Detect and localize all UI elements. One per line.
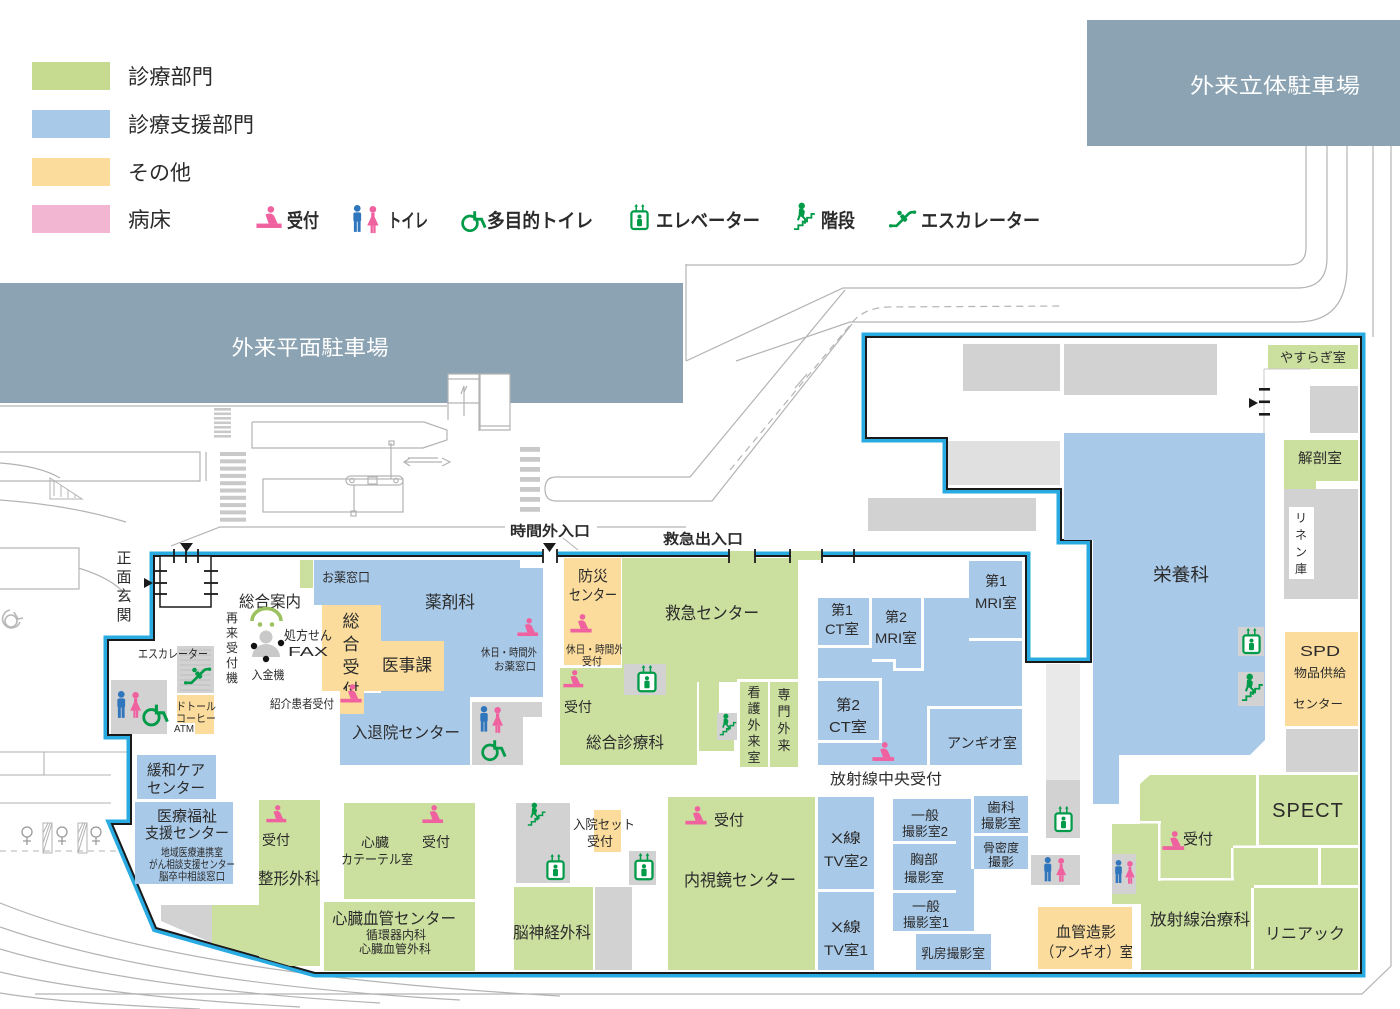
svg-text:医事課: 医事課 [382,656,432,675]
svg-text:紹介患者受付: 紹介患者受付 [270,697,334,711]
svg-text:整形外科: 整形外科 [258,870,320,888]
svg-text:物品供給: 物品供給 [1294,666,1346,680]
svg-text:センター: センター [569,587,617,604]
svg-text:外来立体駐車場: 外来立体駐車場 [1190,75,1360,98]
svg-text:第1: 第1 [831,602,853,618]
svg-text:医療福祉: 医療福祉 [157,808,217,825]
svg-text:薬剤科: 薬剤科 [425,593,475,612]
svg-text:お薬窓口: お薬窓口 [494,659,536,673]
svg-text:入院セット: 入院セット [573,817,635,832]
svg-text:血管造影: 血管造影 [1056,924,1116,941]
svg-text:受付: 受付 [564,699,592,715]
svg-text:第1: 第1 [985,573,1007,589]
svg-text:緩和ケア: 緩和ケア [147,762,205,779]
svg-text:MRI室: MRI室 [975,595,1017,611]
svg-text:受付: 受付 [582,655,602,668]
svg-text:トイレ: トイレ [388,211,428,232]
svg-text:放射線中央受付: 放射線中央受付 [830,771,942,788]
svg-text:病床: 病床 [128,209,171,232]
svg-text:X線: X線 [831,830,861,846]
svg-text:受付: 受付 [1183,831,1213,848]
svg-text:胸部: 胸部 [910,852,938,867]
svg-text:TV室1: TV室1 [824,942,868,958]
svg-text:休日・時間外: 休日・時間外 [481,646,537,659]
svg-text:（アンギオ）室: （アンギオ）室 [1041,944,1133,961]
svg-text:救急センター: 救急センター [665,604,759,623]
svg-text:階段: 階段 [821,209,856,232]
svg-text:骨密度: 骨密度 [983,840,1019,855]
svg-text:歯科: 歯科 [987,800,1015,815]
svg-text:ドトール: ドトール [176,701,216,713]
svg-text:センター: センター [147,780,205,797]
svg-text:地域医療連携室: 地域医療連携室 [161,845,223,859]
svg-text:脳卒中相談窓口: 脳卒中相談窓口 [159,869,225,883]
svg-text:撮影室: 撮影室 [981,816,1021,831]
svg-text:循環器内科: 循環器内科 [366,928,426,942]
svg-text:心臓血管外科: 心臓血管外科 [359,941,431,956]
svg-text:診療支援部門: 診療支援部門 [128,114,254,137]
svg-text:診療部門: 診療部門 [128,66,213,89]
svg-text:防災: 防災 [578,568,608,585]
svg-text:エスカレーター: エスカレーター [921,210,1040,232]
svg-text:支援センター: 支援センター [145,825,229,842]
svg-text:撮影室1: 撮影室1 [903,915,949,930]
svg-text:第2: 第2 [836,696,860,714]
svg-text:やすらぎ室: やすらぎ室 [1280,350,1346,365]
svg-text:X線: X線 [831,919,861,935]
svg-text:撮影室2: 撮影室2 [902,824,948,839]
svg-text:多目的トイレ: 多目的トイレ [487,209,593,232]
svg-text:一般: 一般 [912,899,940,914]
svg-text:TV室2: TV室2 [824,853,868,869]
svg-text:がん相談支援センター: がん相談支援センター [149,857,235,871]
svg-text:受付: 受付 [714,812,744,829]
svg-text:エレベーター: エレベーター [656,210,760,232]
svg-text:脳神経外科: 脳神経外科 [513,924,591,942]
svg-text:リニアック: リニアック [1265,925,1345,943]
svg-text:解剖室: 解剖室 [1298,450,1342,466]
svg-text:受付: 受付 [287,209,319,232]
svg-text:SPD: SPD [1300,643,1340,660]
svg-text:アンギオ室: アンギオ室 [947,735,1017,751]
svg-text:一般: 一般 [911,808,939,823]
svg-text:撮影室: 撮影室 [904,870,944,885]
svg-text:お薬窓口: お薬窓口 [322,570,370,585]
svg-text:外来平面駐車場: 外来平面駐車場 [232,337,389,360]
svg-text:看護外来室: 看護外来室 [747,685,760,765]
svg-text:撮影: 撮影 [988,855,1014,869]
svg-text:受付: 受付 [422,834,450,850]
svg-text:第2: 第2 [885,609,907,625]
svg-text:CT室: CT室 [825,621,859,637]
svg-text:SPECT: SPECT [1272,800,1344,822]
svg-text:放射線治療科: 放射線治療科 [1150,911,1250,929]
svg-text:カテーテル室: カテーテル室 [341,852,413,867]
svg-text:休日・時間外: 休日・時間外 [566,643,624,656]
svg-text:心臓血管センター: 心臓血管センター [332,910,456,928]
svg-text:CT室: CT室 [829,719,867,736]
svg-text:処方せん: 処方せん [284,628,332,643]
svg-text:内視鏡センター: 内視鏡センター [684,871,796,890]
svg-text:エスカレーター: エスカレーター [138,647,208,661]
svg-text:心臓: 心臓 [361,835,389,850]
svg-text:その他: その他 [128,162,191,185]
svg-text:入金機: 入金機 [252,667,285,682]
svg-text:入退院センター: 入退院センター [352,724,460,742]
svg-text:再来受付機: 再来受付機 [226,611,238,685]
svg-text:栄養科: 栄養科 [1153,565,1209,585]
svg-text:総合診療科: 総合診療科 [586,734,664,752]
svg-text:ATM: ATM [174,724,194,735]
svg-text:救急出入口: 救急出入口 [663,531,743,547]
svg-text:受付: 受付 [262,832,290,848]
svg-text:センター: センター [1293,697,1343,711]
svg-text:MRI室: MRI室 [875,630,917,646]
svg-text:受付: 受付 [587,834,613,849]
svg-text:時間外入口: 時間外入口 [510,523,590,539]
svg-text:乳房撮影室: 乳房撮影室 [921,946,985,961]
svg-text:FAX: FAX [288,644,329,659]
